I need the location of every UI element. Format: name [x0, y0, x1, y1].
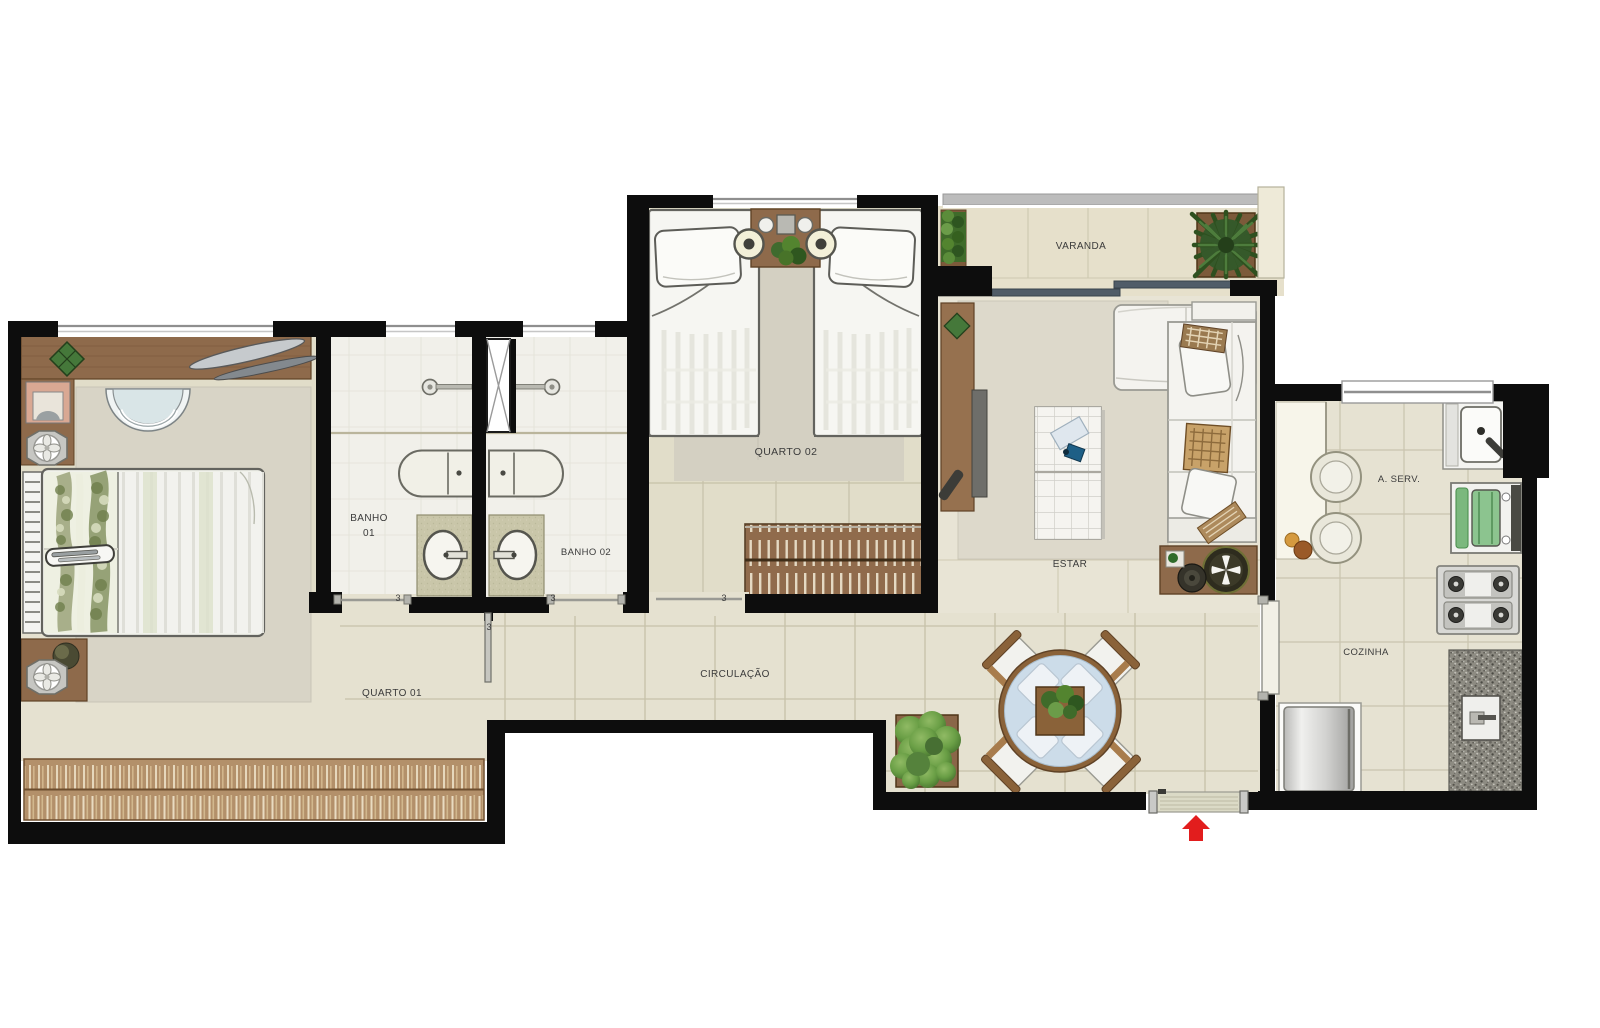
svg-text:A. SERV.: A. SERV.: [1378, 474, 1420, 485]
svg-text:BANHO 02: BANHO 02: [561, 547, 611, 558]
svg-text:BANHO: BANHO: [350, 513, 388, 524]
svg-text:VARANDA: VARANDA: [1056, 241, 1106, 252]
svg-text:COZINHA: COZINHA: [1343, 647, 1389, 658]
svg-text:QUARTO 02: QUARTO 02: [755, 446, 818, 458]
svg-text:3: 3: [550, 593, 555, 603]
svg-text:3: 3: [395, 593, 400, 603]
svg-text:3: 3: [721, 593, 726, 603]
svg-text:ESTAR: ESTAR: [1053, 559, 1088, 570]
svg-text:3: 3: [486, 622, 491, 632]
svg-text:CIRCULAÇÃO: CIRCULAÇÃO: [700, 667, 770, 680]
svg-text:QUARTO 01: QUARTO 01: [362, 688, 422, 699]
svg-text:01: 01: [363, 528, 375, 539]
